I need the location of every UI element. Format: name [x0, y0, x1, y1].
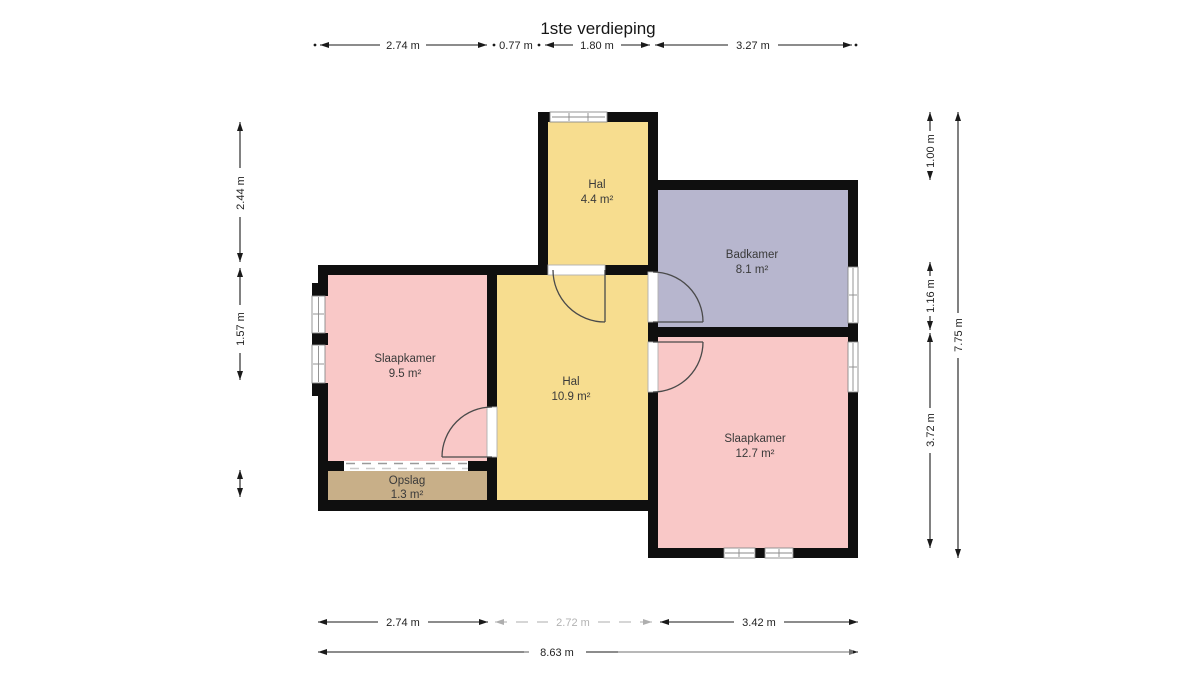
dim-right: 1.00 m 1.16 m 3.72 m 7.75 m: [925, 112, 965, 558]
room-label-hal-top: Hal: [588, 179, 605, 191]
threshold-slaapkamer-left: [487, 407, 497, 457]
floor-plan-page: Hal 4.4 m² Badkamer 8.1 m² Slaapkamer 9.…: [0, 0, 1200, 675]
dim-label-bottom-total: 8.63 m: [540, 647, 574, 659]
plan-title: 1ste verdieping: [540, 19, 655, 38]
threshold-slaapkamer-right: [648, 342, 658, 392]
dim-label-bottom-2: 2.72 m: [556, 617, 590, 629]
window-slaapkamer-right: [848, 342, 858, 392]
dim-label-right-1: 1.00 m: [925, 134, 937, 168]
room-label-slaapkamer-left: Slaapkamer: [374, 353, 436, 365]
room-label-opslag: Opslag: [389, 475, 425, 487]
dim-label-right-3: 3.72 m: [925, 413, 937, 447]
room-area-hal-main: 10.9 m²: [552, 391, 591, 403]
dim-label-top-2: 0.77 m: [499, 40, 533, 52]
dim-label-bottom-1: 2.74 m: [386, 617, 420, 629]
room-area-badkamer: 8.1 m²: [736, 264, 769, 276]
room-area-slaapkamer-left: 9.5 m²: [389, 368, 422, 380]
dim-left: 2.44 m 1.57 m: [235, 122, 247, 497]
room-area-slaapkamer-right: 12.7 m²: [736, 448, 775, 460]
dim-label-top-4: 3.27 m: [736, 40, 770, 52]
dim-label-right-total: 7.75 m: [953, 318, 965, 352]
watermark-fade: [618, 641, 853, 659]
room-label-badkamer: Badkamer: [726, 249, 779, 261]
dim-label-left-2: 1.57 m: [235, 312, 247, 346]
dim-label-top-3: 1.80 m: [580, 40, 614, 52]
window-slaapkamer-bottom-1: [724, 548, 755, 558]
dim-label-bottom-3: 3.42 m: [742, 617, 776, 629]
room-hal-main-fill: [492, 265, 658, 511]
room-label-slaapkamer-right: Slaapkamer: [724, 433, 786, 445]
dim-label-right-2: 1.16 m: [925, 279, 937, 313]
room-area-opslag: 1.3 m²: [391, 489, 424, 501]
room-label-hal-main: Hal: [562, 376, 579, 388]
opslag-dashed-opening: [344, 461, 468, 471]
room-area-hal-top: 4.4 m²: [581, 194, 614, 206]
dim-bottom: 2.74 m 2.72 m 3.42 m 8.63 m: [318, 617, 858, 659]
dim-top: 2.74 m 0.77 m 1.80 m 3.27 m: [314, 40, 858, 52]
window-badkamer-right: [848, 267, 858, 323]
window-slaapkamer-left-2: [312, 345, 325, 383]
floorplan-svg: Hal 4.4 m² Badkamer 8.1 m² Slaapkamer 9.…: [0, 0, 1200, 675]
window-slaapkamer-left-1: [312, 296, 325, 333]
dim-label-left-1: 2.44 m: [235, 176, 247, 210]
threshold-badkamer: [648, 272, 658, 322]
threshold-hal-top: [548, 265, 605, 275]
dim-bottom-2-faded: 2.72 m: [495, 617, 652, 629]
window-slaapkamer-bottom-2: [765, 548, 793, 558]
watermark-fade-2: [524, 644, 538, 658]
dim-label-top-1: 2.74 m: [386, 40, 420, 52]
window-hal-top: [550, 112, 607, 122]
